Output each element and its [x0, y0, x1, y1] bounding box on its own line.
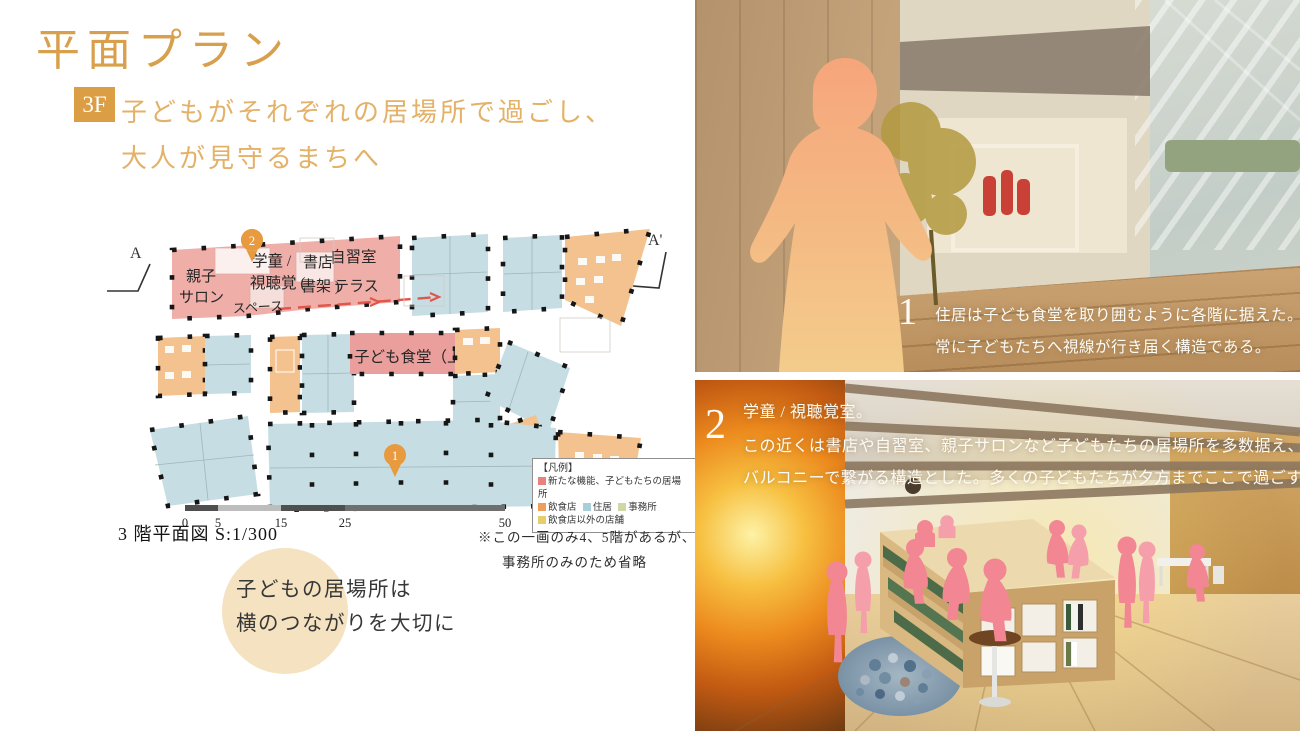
legend-swatch-restaurant — [538, 503, 546, 511]
block-residence-bottom-wide — [268, 420, 556, 510]
bubble-line-1: 子どもの居場所は — [236, 573, 456, 607]
legend-label-othershop: 飲食店以外の店舗 — [548, 516, 624, 526]
caption-1-number: 1 — [898, 293, 917, 331]
room-jishu: 自習室 — [330, 248, 377, 266]
light-streaks — [1165, 0, 1300, 120]
plan-note-line-2: 事務所のみのため省略 — [502, 551, 647, 571]
caption-2-line-1: 学童 / 視聴覚室。 — [743, 398, 872, 422]
legend-label-office: 事務所 — [628, 503, 657, 513]
caption-2-line-2: この近くは書店や自習室、親子サロンなど子どもたちの居場所を多数据え、 — [743, 432, 1300, 456]
block-residence-mid-left — [205, 335, 251, 394]
slide: 平面プラン 3F 子どもがそれぞれの居場所で過ごし、 大人が見守るまちへ A A… — [0, 0, 1300, 731]
caption-1-line-2: 常に子どもたちへ視線が行き届く構造である。 — [935, 335, 1271, 357]
caption-2-line-3: バルコニーで繋がる構造とした。多くの子どもたちが夕方までここで過ごす。 — [743, 464, 1300, 488]
right-table-set — [1145, 558, 1224, 586]
space-label: スペース — [232, 298, 283, 316]
rendering-afterschool-room: 2 学童 / 視聴覚室。 この近くは書店や自習室、親子サロンなど子どもたちの居場… — [695, 380, 1300, 731]
legend-swatch-residence — [583, 503, 591, 511]
legend-swatch-office — [618, 503, 626, 511]
roof-band — [900, 26, 1150, 96]
rendering-balcony: 1 住居は子ども食堂を取り囲むように各階に据えた。 常に子どもたちへ視線が行き届… — [695, 0, 1300, 372]
legend-row-1: 新たな機能、子どもたちの居場所 — [538, 476, 690, 502]
room-shoten-1: 書店 — [303, 254, 333, 271]
plan-note-line-1: ※この一画のみ4、5階があるが、 — [478, 526, 696, 546]
room-gakudo-1: 学童 / — [252, 251, 292, 270]
block-restaurant-mid-right — [455, 328, 500, 374]
legend-swatch-othershop — [538, 516, 546, 524]
red-figures — [983, 170, 1030, 216]
legend-row-2: 飲食店 住居 事務所 — [538, 502, 690, 515]
pin-2-number: 2 — [249, 234, 255, 248]
legend-title: 【凡例】 — [538, 462, 690, 475]
subtitle-line-1: 子どもがそれぞれの居場所で過ごし、 — [121, 90, 614, 136]
section-a-label: A — [130, 245, 142, 262]
legend-label-restaurant: 飲食店 — [548, 503, 577, 513]
highlight-bubble-text: 子どもの居場所は 横のつながりを大切に — [236, 573, 456, 641]
legend-label-kids: 新たな機能、子どもたちの居場所 — [538, 477, 681, 500]
scale-tick-25: 25 — [339, 516, 352, 530]
subtitle-line-2: 大人が見守るまちへ — [121, 136, 614, 182]
legend-swatch-kids — [538, 477, 546, 485]
block-restaurant-mid-center — [270, 336, 300, 413]
caption-2-number: 2 — [705, 404, 726, 446]
pin-1-number: 1 — [392, 449, 398, 463]
section-marker-a: A — [107, 245, 150, 291]
room-oyako-1: 親子 — [186, 268, 216, 285]
page-title: 平面プラン — [36, 14, 291, 78]
room-terrace: テラス — [334, 279, 379, 295]
bubble-line-2: 横のつながりを大切に — [236, 607, 456, 641]
page-subtitle: 子どもがそれぞれの居場所で過ごし、 大人が見守るまちへ — [121, 90, 614, 182]
plan-caption: 3 階平面図 S:1/300 — [118, 520, 278, 546]
room-oyako-2: サロン — [179, 290, 224, 306]
block-restaurant-mid-left — [158, 336, 205, 396]
block-residence-top — [412, 234, 562, 316]
plan-legend: 【凡例】 新たな機能、子どもたちの居場所 飲食店 住居 事務所 飲食店以外の店舗 — [532, 458, 696, 533]
caption-1-line-1: 住居は子ども食堂を取り囲むように各階に据えた。 — [935, 303, 1300, 325]
room-gakudo-2: 視聴覚 ( — [250, 274, 306, 292]
block-residence-bottom-left — [150, 416, 258, 506]
block-residence-mid-center — [302, 334, 354, 413]
floor-badge: 3F — [74, 87, 115, 122]
legend-label-residence: 住居 — [593, 503, 612, 513]
block-restaurant-top — [565, 229, 650, 326]
